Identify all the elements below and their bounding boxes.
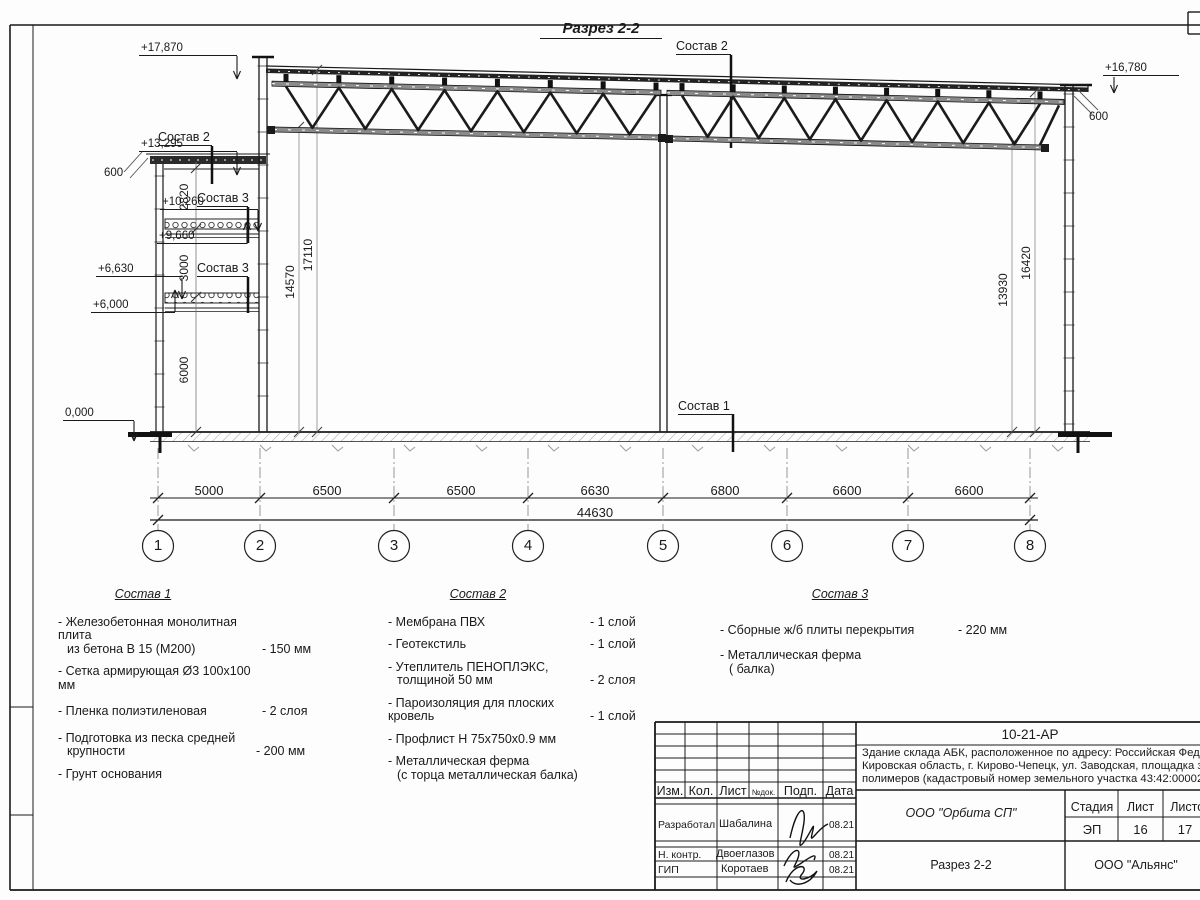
- legend-item: - Профлист Н 75х750х0.9 мм: [388, 733, 653, 747]
- col-header-izm: Изм.: [655, 784, 685, 798]
- legend-item: - Утеплитель ПЕНОПЛЭКС,толщиной 50 мм - …: [388, 661, 653, 688]
- col-header-ndok: №док.: [749, 788, 778, 797]
- axis-bubble-8: 8: [1016, 537, 1044, 554]
- col-header-list: Лист: [717, 784, 749, 798]
- legend-title: Состав 3: [780, 588, 900, 602]
- stage-header: Стадия: [1066, 800, 1118, 814]
- org-name: ООО "Орбита СП": [860, 806, 1062, 820]
- vert-dim-17110: 17110: [301, 223, 315, 287]
- sheet-header: Лист: [1118, 800, 1163, 814]
- col-header-kol: Кол.: [685, 784, 717, 798]
- project-desc-line3: полимеров (кадастровый номер земельного …: [862, 773, 1200, 785]
- legend-item: - Сетка армирующая Ø3 100х100 мм: [58, 665, 338, 692]
- elevation-mark: +17,870: [139, 42, 237, 56]
- callout-sostav3: Состав 3: [197, 261, 248, 277]
- axis-dim: 6600: [939, 483, 999, 498]
- legend-sostav2: Состав 2 - Мембрана ПВХ - 1 слой - Геоте…: [388, 588, 653, 791]
- columns-walls: [252, 57, 1092, 432]
- drawing-name: Разрез 2-2: [860, 858, 1062, 872]
- axis-dim: 6600: [817, 483, 877, 498]
- sheets-total: 17: [1163, 822, 1200, 837]
- callout-sostav2: Состав 2: [676, 39, 731, 55]
- vert-dim-16420: 16420: [1019, 231, 1033, 295]
- legend-title: Состав 1: [68, 588, 218, 602]
- legend-item: - Пленка полиэтиленовая - 2 слоя: [58, 705, 338, 719]
- axis-bubble-5: 5: [649, 537, 677, 554]
- elevation-arrows: [131, 56, 1118, 441]
- callout-sostav2: Состав 2: [158, 130, 212, 146]
- offset-dim-600-left: 600: [104, 167, 123, 179]
- legend-item: - Геотекстиль - 1 слой: [388, 638, 653, 652]
- elevation-mark: +16,780: [1103, 62, 1179, 76]
- legend-item: - Металлическая ферма( балка): [720, 649, 1030, 676]
- offset-dim-600-right: 600: [1089, 111, 1108, 123]
- axis-dim: 5000: [179, 483, 239, 498]
- axis-bubble-4: 4: [514, 537, 542, 554]
- legend-item: - Грунт основания: [58, 768, 338, 782]
- callout-sostav3: Состав 3: [197, 191, 248, 207]
- axis-bubble-1: 1: [144, 537, 172, 554]
- doc-code: 10-21-АР: [930, 727, 1130, 742]
- sheet-number: 16: [1118, 822, 1163, 837]
- stage-value: ЭП: [1066, 822, 1118, 837]
- name-developed: Шабалина: [719, 818, 772, 830]
- date-gip: 08.21: [829, 865, 854, 876]
- callout-sostav1: Состав 1: [678, 399, 733, 415]
- legend-item: - Подготовка из песка среднейкрупности -…: [58, 732, 338, 759]
- vert-dim-13930: 13930: [996, 258, 1010, 322]
- legend-item: - Железобетонная монолитная плитаиз бето…: [58, 616, 338, 657]
- axis-bubble-3: 3: [380, 537, 408, 554]
- legend-item: - Пароизоляция для плоских кровель - 1 с…: [388, 697, 653, 724]
- vert-dim-3000: 3000: [177, 236, 191, 300]
- vert-dim-2820: 2820: [177, 165, 191, 229]
- legend-title: Состав 2: [413, 588, 543, 602]
- vert-dim-14570: 14570: [283, 250, 297, 314]
- sheets-header: Листов: [1163, 800, 1200, 814]
- axis-bubble-6: 6: [773, 537, 801, 554]
- axis-dim: 6630: [565, 483, 625, 498]
- legend-item: - Мембрана ПВХ - 1 слой: [388, 616, 653, 630]
- drawing-title: Разрез 2-2: [540, 20, 662, 39]
- legend-item: - Сборные ж/б плиты перекрытия - 220 мм: [720, 624, 1030, 638]
- axis-dim: 6800: [695, 483, 755, 498]
- total-dim: 44630: [564, 505, 626, 520]
- date-ncontrol: 08.21: [829, 850, 854, 861]
- vert-dim-6000: 6000: [177, 338, 191, 402]
- legend-item: - Металлическая ферма(с торца металличес…: [388, 755, 653, 782]
- legend-sostav1: Состав 1 - Железобетонная монолитная пли…: [58, 588, 338, 790]
- name-ncontrol: Двоеглазов: [716, 848, 774, 860]
- axis-dim: 6500: [297, 483, 357, 498]
- col-header-data: Дата: [823, 784, 856, 798]
- floor-slab: [128, 432, 1112, 453]
- elevation-mark: +6,000: [91, 299, 175, 313]
- role-developed: Разработал: [658, 819, 715, 831]
- project-desc-line1: Здание склада АБК, расположенное по адре…: [862, 747, 1200, 759]
- col-header-podp: Подп.: [778, 784, 823, 798]
- elevation-mark: +9,660: [157, 230, 247, 244]
- company-name: ООО "Альянс": [1066, 858, 1200, 872]
- axis-bubble-2: 2: [246, 537, 274, 554]
- elevation-mark: +6,630: [96, 263, 182, 277]
- axis-bubble-7: 7: [894, 537, 922, 554]
- legend-sostav3: Состав 3 - Сборные ж/б плиты перекрытия …: [720, 588, 1030, 685]
- role-ncontrol: Н. контр.: [658, 849, 701, 861]
- role-gip: ГИП: [658, 864, 679, 876]
- axis-dim: 6500: [431, 483, 491, 498]
- elevation-mark: 0,000: [63, 407, 134, 421]
- drawing-sheet: Разрез 2-2 +17,870 +13,295 +10,260 +9,66…: [0, 0, 1200, 900]
- project-desc-line2: Кировская область, г. Кирово-Чепецк, ул.…: [862, 760, 1200, 772]
- name-gip: Коротаев: [721, 863, 769, 875]
- date-developed: 08.21: [829, 820, 854, 831]
